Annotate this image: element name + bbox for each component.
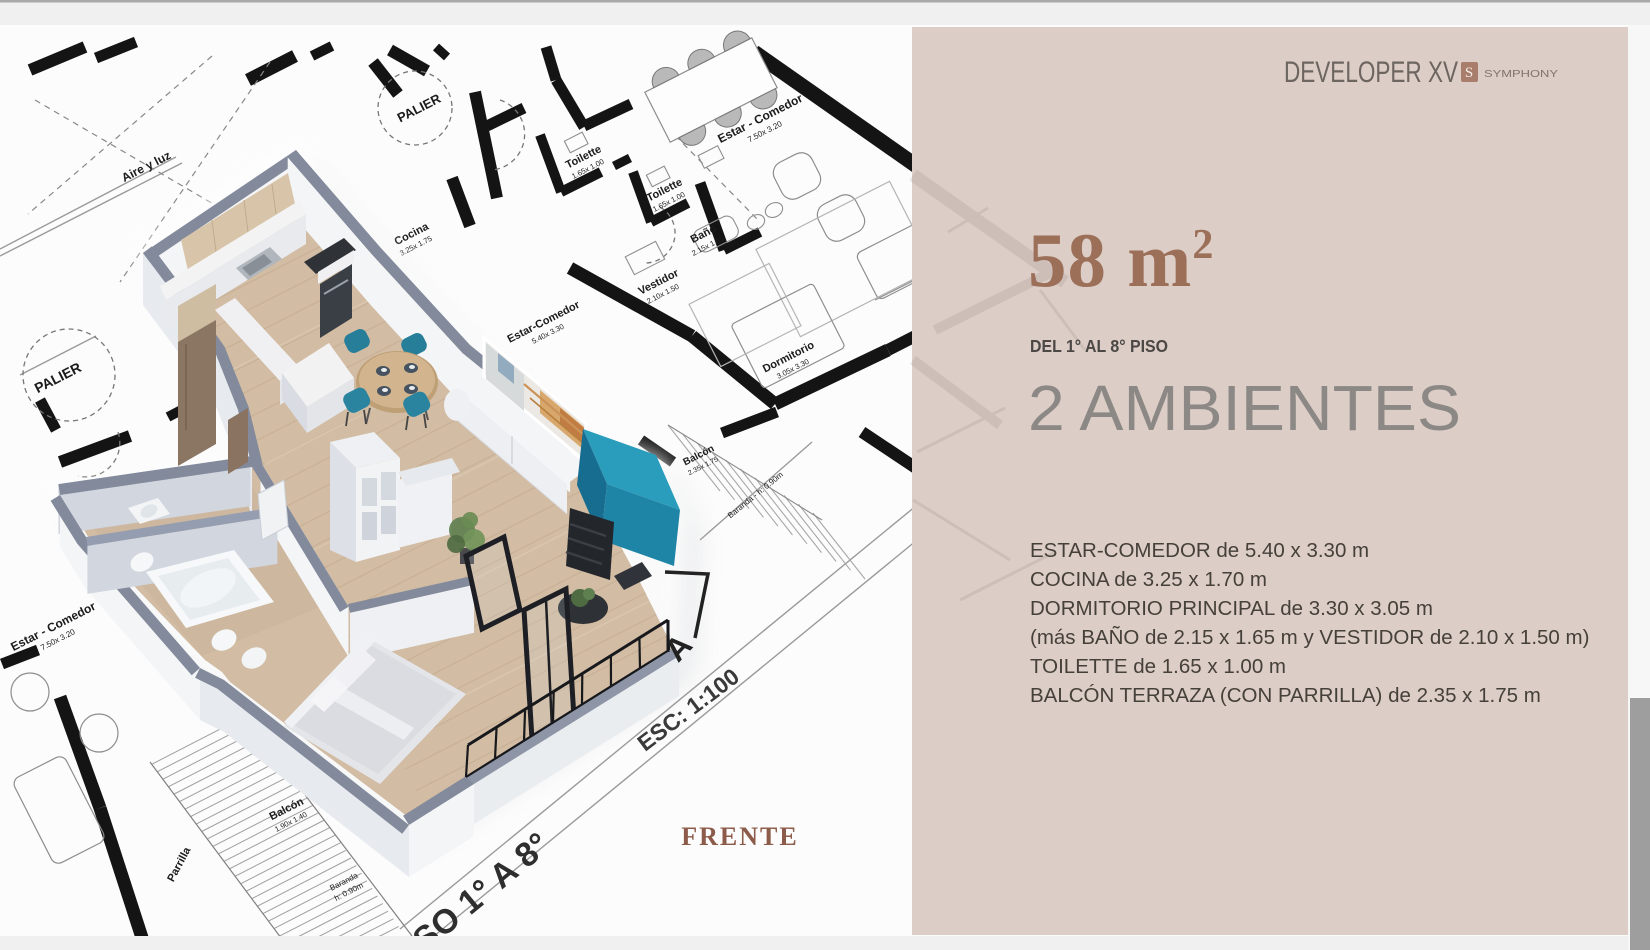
svg-text:58 m2: 58 m2 bbox=[1028, 217, 1214, 303]
svg-text:SYMPHONY: SYMPHONY bbox=[1484, 68, 1558, 80]
svg-text:S: S bbox=[1465, 65, 1473, 81]
svg-text:DEL 1° AL 8° PISO: DEL 1° AL 8° PISO bbox=[1030, 336, 1168, 356]
svg-text:ESTAR-COMEDOR de 5.40 x 3.30 m: ESTAR-COMEDOR de 5.40 x 3.30 m bbox=[1030, 539, 1369, 562]
svg-text:COCINA de 3.25 x 1.70 m: COCINA de 3.25 x 1.70 m bbox=[1030, 568, 1267, 591]
svg-text:FRENTE: FRENTE bbox=[681, 822, 798, 851]
svg-text:BALCÓN TERRAZA (CON PARRILLA): BALCÓN TERRAZA (CON PARRILLA) de 2.35 x … bbox=[1030, 684, 1541, 707]
svg-text:DORMITORIO PRINCIPAL de 3.30 x: DORMITORIO PRINCIPAL de 3.30 x 3.05 m bbox=[1030, 597, 1433, 620]
svg-text:DEVELOPER XV: DEVELOPER XV bbox=[1284, 56, 1458, 89]
svg-text:(más BAÑO de 2.15 x 1.65 m y V: (más BAÑO de 2.15 x 1.65 m y VESTIDOR de… bbox=[1030, 626, 1589, 649]
svg-text:2 AMBIENTES: 2 AMBIENTES bbox=[1028, 372, 1461, 444]
svg-text:TOILETTE de 1.65 x 1.00 m: TOILETTE de 1.65 x 1.00 m bbox=[1030, 655, 1286, 678]
